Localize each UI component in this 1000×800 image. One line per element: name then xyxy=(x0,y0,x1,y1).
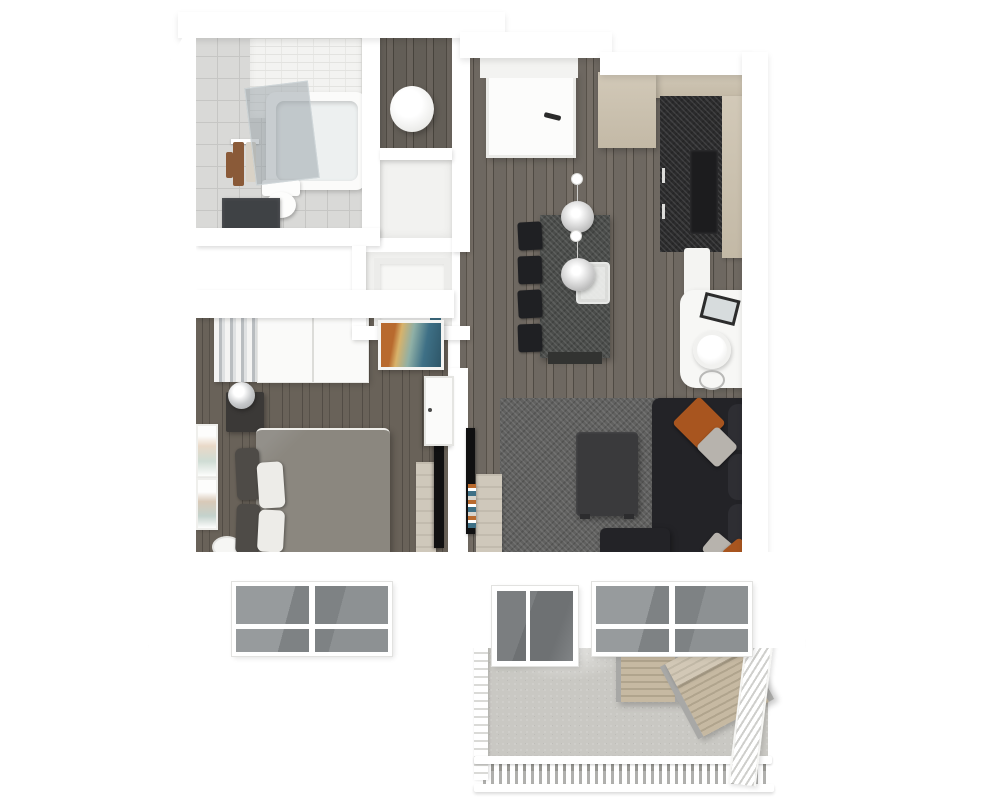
wardrobe-door-split xyxy=(312,318,314,382)
desk-bowl-lamp xyxy=(693,331,731,369)
framed-print-1 xyxy=(196,424,218,478)
dining-chair-3 xyxy=(517,289,542,318)
wall-bedroom-top xyxy=(196,290,454,318)
living-window xyxy=(592,582,752,656)
glass-shower-screen xyxy=(244,80,319,185)
floor-plan-scene xyxy=(0,0,1000,800)
pendant-lamp-1 xyxy=(561,201,594,233)
dining-table-base xyxy=(548,352,602,364)
bedroom-wall-art xyxy=(378,320,444,370)
wall-outer-top-left xyxy=(178,12,505,38)
framed-print-2 xyxy=(196,478,218,530)
wall-outer-left xyxy=(170,12,196,558)
balcony-sliding-door xyxy=(492,586,578,666)
pendant-ceiling-mount-1 xyxy=(572,174,582,184)
bedroom-media-console xyxy=(416,462,436,558)
bed-pillow-white-1 xyxy=(256,461,285,509)
wall-closet-divider xyxy=(380,148,452,160)
closet-mid-floor xyxy=(380,160,452,238)
dining-chair-1 xyxy=(517,221,542,250)
media-shelf-books xyxy=(468,484,476,528)
bedroom-window xyxy=(232,582,392,656)
bedroom-curtains xyxy=(214,318,258,382)
shelf-bottles xyxy=(226,152,233,178)
coffee-table-foot-right xyxy=(624,514,634,519)
wall-bath-closet xyxy=(362,32,380,238)
kitchen-cooktop xyxy=(690,150,718,234)
bedroom-tv xyxy=(434,444,444,548)
bedroom-door-handle xyxy=(428,408,432,412)
front-door xyxy=(486,72,576,158)
wall-outer-top-entry xyxy=(460,32,612,58)
wall-outer-top-kitchen xyxy=(600,52,752,75)
dining-chair-4 xyxy=(518,324,543,353)
bedroom-window-glass xyxy=(236,586,388,652)
pendant-ceiling-mount-2 xyxy=(571,231,581,241)
cabinet-handle-1 xyxy=(662,168,665,183)
water-heater xyxy=(390,86,434,132)
bed-pillow-white-2 xyxy=(257,509,285,552)
vanity-counter xyxy=(222,198,280,232)
balcony-railing-bottom-toprail xyxy=(474,756,772,764)
sliding-door-glass xyxy=(497,591,573,661)
desk-metal-ring xyxy=(699,370,725,390)
living-window-glass xyxy=(596,586,748,652)
balcony-railing-bottom-pickets xyxy=(478,764,770,786)
kitchen-pantry-cabinet xyxy=(598,72,656,148)
pendant-lamp-2 xyxy=(561,258,595,291)
towel-brown xyxy=(233,142,244,186)
wall-bath-bottom xyxy=(196,228,380,246)
kitchen-white-appliance xyxy=(684,248,710,296)
cabinet-handle-2 xyxy=(662,204,665,219)
coffee-table xyxy=(576,432,638,516)
balcony-railing-bottom-baserail xyxy=(474,784,774,792)
wall-closet-entry xyxy=(452,32,470,252)
coffee-table-foot-left xyxy=(580,514,590,519)
wall-outer-right xyxy=(742,52,768,558)
dining-chair-2 xyxy=(518,256,543,285)
sphere-table-lamp xyxy=(228,382,255,409)
living-media-console xyxy=(476,474,502,558)
